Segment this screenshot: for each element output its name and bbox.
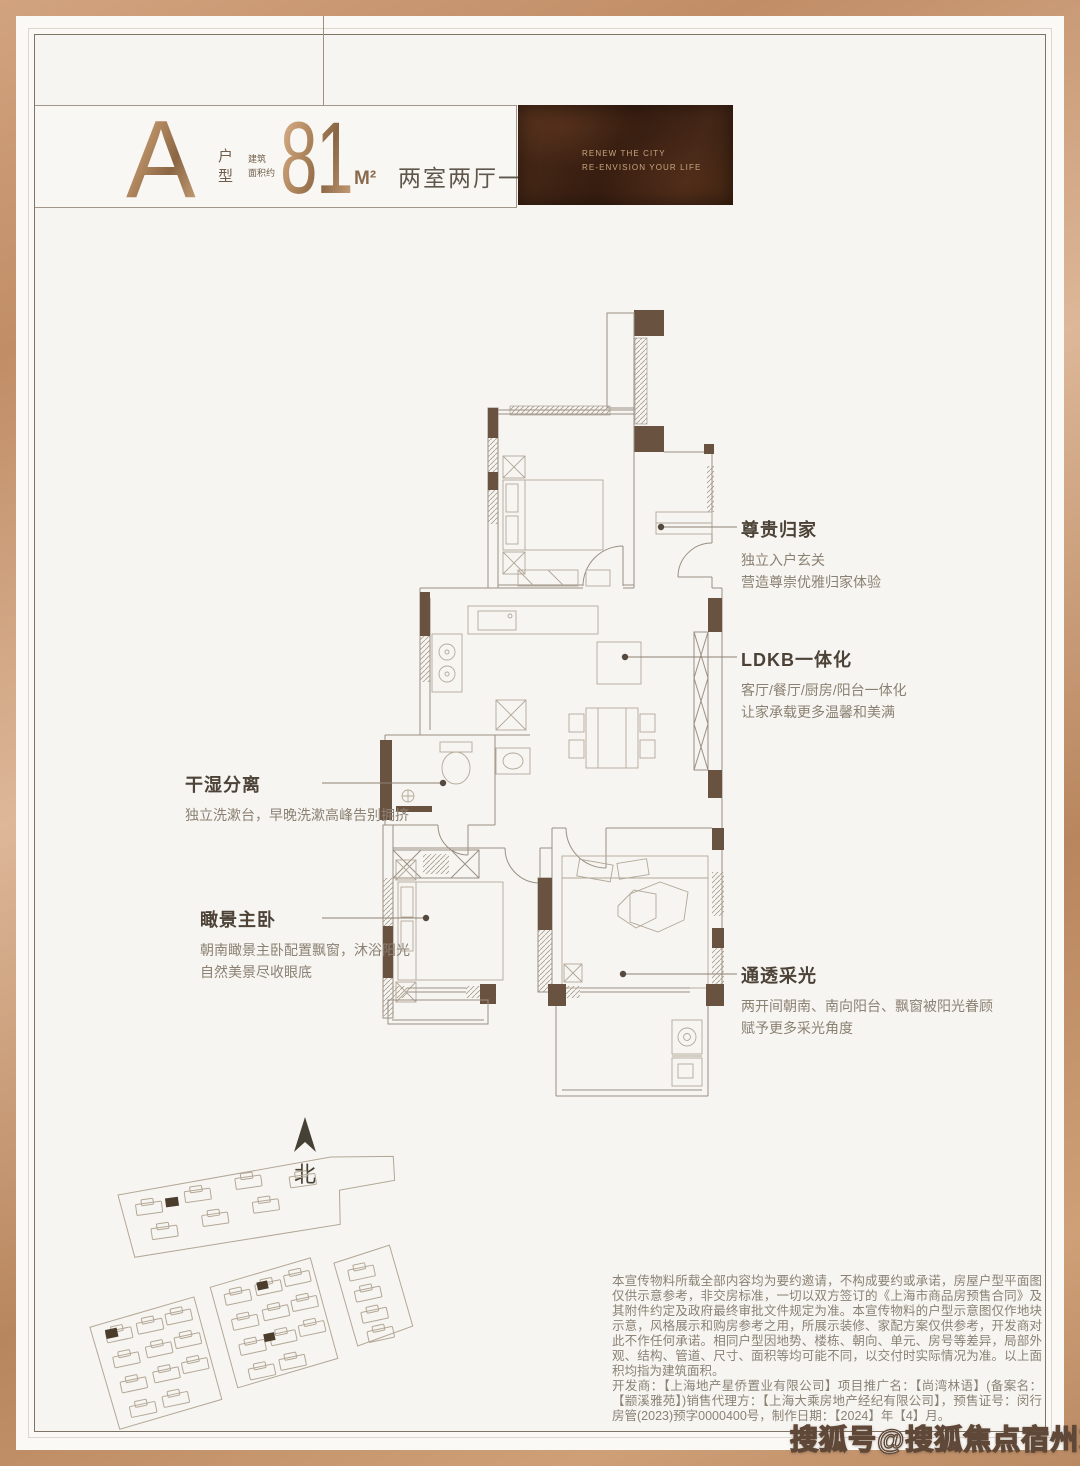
disclaimer-paragraph-1: 本宣传物料所载全部内容均为要约邀请，不构成要约或承诺，房屋户型平面图仅供示意参考… xyxy=(612,1274,1042,1379)
callout-ldkb: LDKB一体化 客厅/餐厅/厨房/阳台一体化 让家承载更多温馨和美满 xyxy=(741,646,907,724)
callout-master-title: 瞰景主卧 xyxy=(200,906,410,932)
callout-daylight-line2: 赋予更多采光角度 xyxy=(741,1017,993,1039)
callout-wet-dry-title: 干湿分离 xyxy=(185,771,409,797)
callout-ldkb-line2: 让家承载更多温馨和美满 xyxy=(741,701,907,723)
living-dining-kitchen xyxy=(420,588,722,820)
callout-entry-line1: 独立入户玄关 xyxy=(741,549,881,571)
area-prefix: 建筑 面积约 xyxy=(248,152,275,181)
legal-disclaimer: 本宣传物料所载全部内容均为要约邀请，不构成要约或承诺，房屋户型平面图仅供示意参考… xyxy=(612,1274,1042,1424)
area-unit: M² xyxy=(354,168,376,190)
brand-slogan: RENEW THE CITY RE-ENVISION YOUR LIFE xyxy=(582,147,701,174)
shaft-top-right xyxy=(607,310,664,452)
unit-letter: A xyxy=(126,108,196,213)
callout-entry-title: 尊贵归家 xyxy=(741,516,881,542)
callout-master: 瞰景主卧 朝南瞰景主卧配置飘窗，沐浴阳光 自然美景尽收眼底 xyxy=(200,906,410,984)
callout-wet-dry: 干湿分离 独立洗漱台，早晚洗漱高峰告别拥挤 xyxy=(185,771,409,826)
callout-daylight: 通透采光 两开间朝南、南向阳台、飘窗被阳光眷顾 赋予更多采光角度 xyxy=(741,962,993,1040)
callout-entry-line2: 营造尊崇优雅归家体验 xyxy=(741,571,881,593)
floorplan-drawing xyxy=(350,280,770,1160)
callout-ldkb-line1: 客厅/餐厅/厨房/阳台一体化 xyxy=(741,679,907,701)
callout-daylight-title: 通透采光 xyxy=(741,962,993,988)
callout-master-line1: 朝南瞰景主卧配置飘窗，沐浴阳光 xyxy=(200,939,410,961)
area-prefix-line2: 面积约 xyxy=(248,166,275,180)
header-divider-line xyxy=(323,16,324,106)
brand-slogan-line2: RE-ENVISION YOUR LIFE xyxy=(582,161,701,175)
balcony xyxy=(556,1006,708,1096)
unit-type-label: 户型 xyxy=(218,147,236,188)
bedroom-second xyxy=(488,336,634,588)
poster-canvas: A 户型 建筑 面积约 81 M² 两室两厅一卫 RENEW THE CITY … xyxy=(0,0,1080,1466)
callout-wet-dry-line1: 独立洗漱台，早晚洗漱高峰告别拥挤 xyxy=(185,804,409,826)
bedroom-south xyxy=(548,820,724,1006)
callout-master-line2: 自然美景尽收眼底 xyxy=(200,961,410,983)
brand-banner: RENEW THE CITY RE-ENVISION YOUR LIFE xyxy=(518,105,733,205)
callout-entry: 尊贵归家 独立入户玄关 营造尊崇优雅归家体验 xyxy=(741,516,881,594)
entry-hall xyxy=(656,444,714,588)
brand-slogan-line1: RENEW THE CITY xyxy=(582,147,701,161)
callout-daylight-line1: 两开间朝南、南向阳台、飘窗被阳光眷顾 xyxy=(741,995,993,1017)
area-prefix-line1: 建筑 xyxy=(248,152,275,166)
area-value: 81 xyxy=(280,112,352,206)
watermark: 搜狐号@搜狐焦点宿州站 xyxy=(790,1418,1080,1458)
callout-ldkb-title: LDKB一体化 xyxy=(741,646,907,672)
